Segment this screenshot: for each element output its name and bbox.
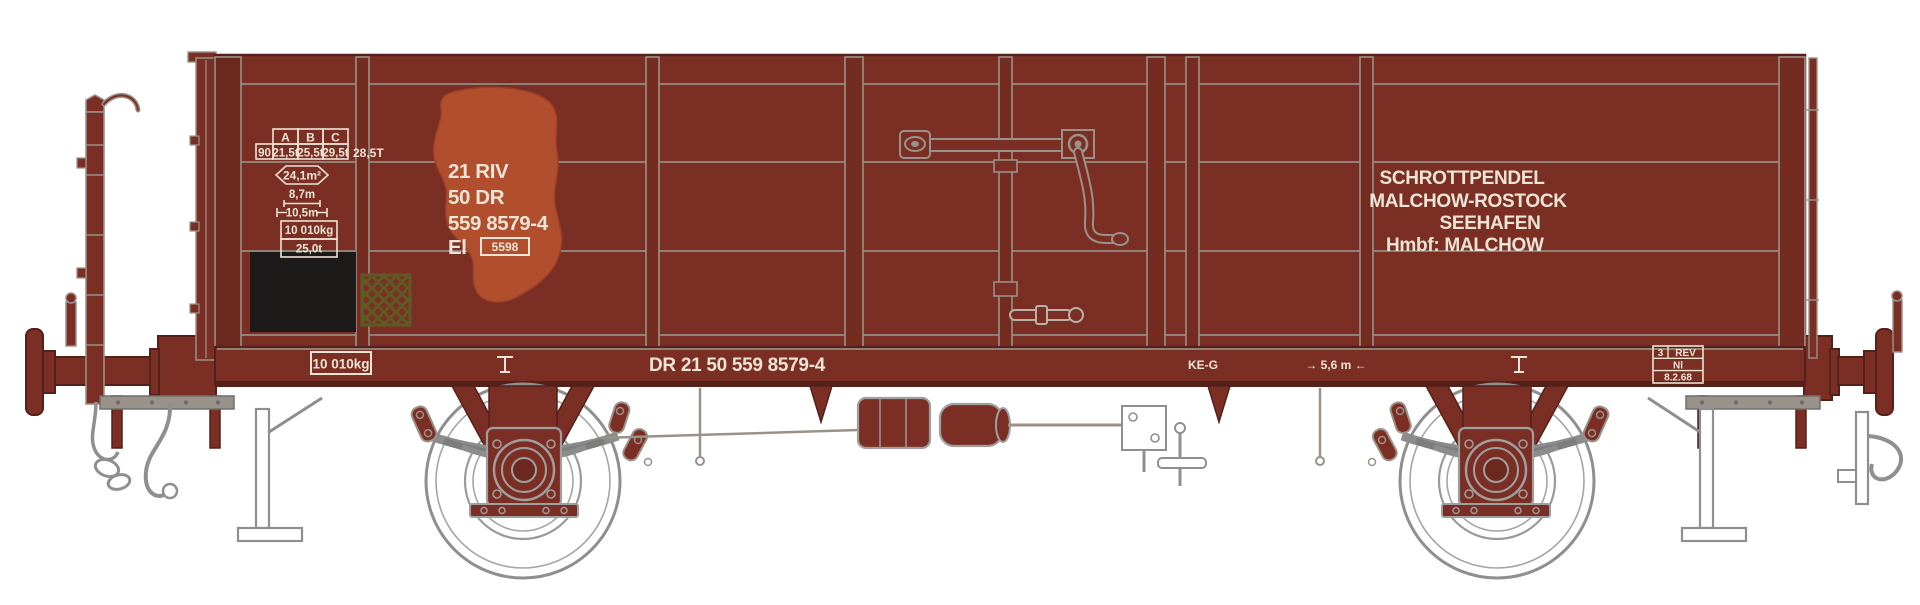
load-table-col-b: B <box>306 131 315 145</box>
brake-gear <box>600 386 1230 486</box>
home-depot-station: MALCHOW <box>1444 235 1544 256</box>
route-line1: SCHROTTPENDEL <box>1380 168 1546 189</box>
rev-cell1: 3 <box>1658 348 1664 359</box>
brake-hose <box>146 402 177 498</box>
door-locking-rod <box>999 57 1012 347</box>
chalk-board <box>250 252 356 332</box>
load-table-side-value: 28,5T <box>353 146 384 160</box>
load-table-val-c: 29,5t <box>322 148 348 160</box>
class-letters: El <box>448 236 467 259</box>
route-line2: MALCHOW-ROSTOCK <box>1369 191 1567 212</box>
load-limit-value: 25,0t <box>296 244 322 256</box>
hatched-patch <box>362 275 410 325</box>
uncoupling-lever <box>1838 412 1901 504</box>
load-table-col-c: C <box>331 131 340 145</box>
route-line3: SEEHAFEN <box>1439 213 1540 234</box>
load-table-row-label: 90 <box>258 148 271 160</box>
solebar-tare-value: 10 010kg <box>312 357 369 372</box>
brake-type-label: KE-G <box>1188 358 1218 372</box>
rev-cell2: REV <box>1675 348 1696 359</box>
corner-post-right <box>1779 57 1805 347</box>
freight-wagon-illustration: A B C 90 21,5t 25,5t 29,5t 28,5T 24,1m² … <box>0 0 1920 605</box>
load-table-col-a: A <box>281 131 290 145</box>
left-end-wall-edge <box>188 52 216 360</box>
number-line1: 21 RIV <box>448 160 509 183</box>
spring-shackle <box>409 404 438 443</box>
rev-works: Nl <box>1673 360 1683 371</box>
number-line2: 50 DR <box>448 186 505 209</box>
number-line3: 559 8579-4 <box>448 212 549 235</box>
rev-date: 8.2.68 <box>1664 373 1692 384</box>
v-hanger <box>1208 386 1230 422</box>
shunter-step <box>1648 398 1746 541</box>
corner-post-left <box>215 57 241 347</box>
left-end-undergear <box>92 396 322 541</box>
shunter-step <box>238 398 322 541</box>
tare-weight-value: 10 010kg <box>285 225 334 237</box>
v-hanger <box>810 386 832 422</box>
brake-cylinder <box>940 404 1002 446</box>
air-reservoir <box>858 398 930 448</box>
coupling-pin <box>1893 300 1902 352</box>
axle-distance-label: → 5,6 m ← <box>1305 358 1366 372</box>
left-wheelset <box>409 384 704 578</box>
inner-length-value: 8,7m <box>289 189 315 201</box>
brake-linkage <box>1122 406 1206 486</box>
coupling-pin <box>66 302 76 346</box>
axlebox <box>1442 428 1550 517</box>
load-table-val-a: 21,5t <box>272 148 298 160</box>
home-depot-label: Hmbf: <box>1386 235 1439 256</box>
brake-crank-handle <box>104 95 138 110</box>
axlebox <box>470 428 578 517</box>
overall-length-value: 10,5m <box>286 208 319 220</box>
solebar: 10 010kg DR 21 50 559 8579-4 KE-G → 5,6 … <box>215 346 1805 387</box>
end-handrail <box>1809 58 1817 358</box>
class-number: 5598 <box>492 240 519 254</box>
adjuster-handle <box>1158 458 1206 468</box>
right-wheelset <box>1316 384 1611 578</box>
load-table-val-b: 25,5t <box>297 148 323 160</box>
floor-area-value: 24,1m² <box>283 169 321 183</box>
solebar-vehicle-number: DR 21 50 559 8579-4 <box>649 355 826 376</box>
